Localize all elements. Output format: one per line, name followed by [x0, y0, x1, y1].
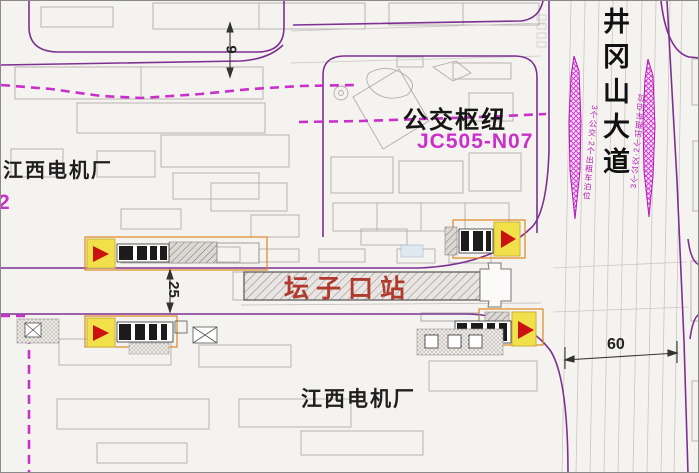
dimension-avenue: 60	[607, 336, 625, 354]
entrance-southeast	[417, 309, 543, 355]
entrance-southwest	[17, 316, 217, 354]
bus-bay-right-shape	[643, 59, 655, 217]
station-footprint	[244, 263, 511, 307]
bus-bay-left-shape	[569, 56, 581, 219]
plan-drawing	[1, 1, 699, 473]
dimension-top-street: 9	[223, 45, 240, 53]
bus-bays-layer	[569, 56, 655, 219]
entrance-northeast	[401, 220, 525, 258]
dimension-station-road: 25	[165, 281, 182, 298]
site-plan-canvas: 江西电机厂 2 公交枢纽 JC505-N07 井冈山大道 坛子口站 江西电机厂 …	[0, 0, 699, 473]
buildings-layer	[11, 3, 699, 463]
dimension-lines	[167, 23, 677, 369]
